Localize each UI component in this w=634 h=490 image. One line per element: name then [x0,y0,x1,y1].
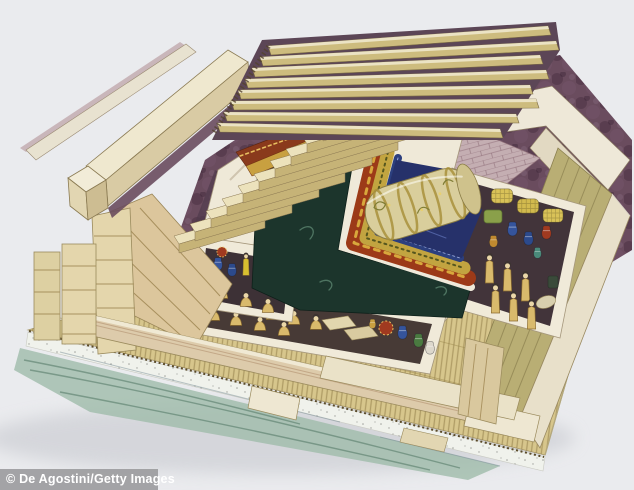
getty-watermark: © De Agostini/Getty Images [0,469,158,490]
lacquer-rosette [217,247,227,257]
figurine [527,299,535,329]
white-jar [426,342,435,355]
woven-bale [517,199,538,213]
stock-illustration-page: © De Agostini/Getty Images [0,0,634,490]
figurine [485,253,493,283]
figurine [503,261,511,291]
red-jar [542,226,551,239]
blue-jar [398,326,407,339]
tomb-cutaway-illustration [0,0,634,490]
blue-jar [228,264,237,277]
left-post [34,252,60,340]
amber-jar [489,236,497,248]
teal-jar [534,247,542,258]
green-check-bale [484,210,502,223]
woven-bale [491,189,512,203]
figurine [509,291,517,321]
lacquer-rosette [379,321,393,335]
figurine [491,283,499,313]
figurine [521,271,529,301]
dark-urn [548,276,558,288]
left-post [62,244,96,344]
green-jar [414,334,423,347]
gold-jar [369,319,376,328]
copyright-text: © De Agostini/Getty Images [6,472,175,486]
woven-bale [543,209,563,222]
blue-jar [524,232,533,245]
yellow-figurine [243,253,249,276]
blue-jar [508,222,518,236]
